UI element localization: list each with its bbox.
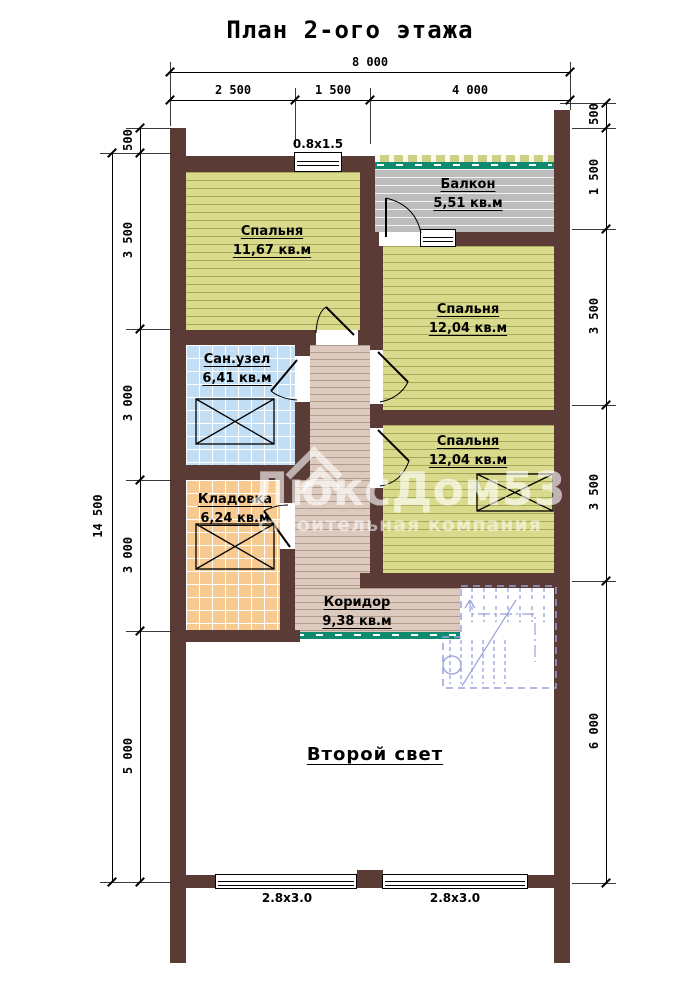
stairs-treads [450,588,544,684]
door-gap-balcony [379,232,421,246]
extension-line [572,229,616,230]
wall-left [170,128,186,963]
room-label-storage: Кладовка 6,24 кв.м [175,490,295,528]
window-label-bottom-right: 2.8х3.0 [405,891,505,905]
window-pane [297,161,339,166]
dim-left-seg-2: 3 500 [121,190,135,290]
door-gap-bathroom [295,356,310,402]
extension-line [126,631,172,632]
room-corridor-mid [295,480,370,588]
room-name: Спальня [408,432,528,451]
stairs-newel [443,656,461,674]
window-pane [385,881,525,886]
room-corridor-upper [310,345,370,480]
wall-bedroom3-bottom [360,573,570,588]
dim-left-seg-3: 3 000 [121,353,135,453]
wall-bathroom-bottom [170,465,310,480]
room-area: 11,67 кв.м [212,241,332,260]
window-label-bottom-left: 2.8х3.0 [237,891,337,905]
door-gap-bedroom-2 [370,350,383,404]
window-balcony-bedroom2 [420,229,456,247]
room-name: Кладовка [175,490,295,509]
room-label-bathroom: Сан.узел 6,41 кв.м [177,350,297,388]
extension-line [126,329,172,330]
room-label-corridor: Коридор 9,38 кв.м [297,593,417,631]
room-area: 6,41 кв.м [177,369,297,388]
extension-line [126,480,172,481]
floor-plan-canvas: План 2-ого этажа [0,0,700,1000]
room-label-bedroom-3: Спальня 12,04 кв.м [408,432,528,470]
dim-right-seg-5: 6 000 [587,681,601,781]
dim-left-seg-4: 3 000 [121,505,135,605]
dimension-line [606,103,607,883]
dim-right-seg-2: 1 500 [587,127,601,227]
room-area: 5,51 кв.м [408,194,528,213]
dimension-line [170,72,570,73]
room-area: 6,24 кв.м [175,509,295,528]
extension-line [572,405,616,406]
stairs-walk-line [470,600,535,662]
dim-right-seg-4: 3 500 [587,442,601,542]
dim-right-seg-3: 3 500 [587,266,601,366]
door-gap-bedroom-1 [316,330,358,345]
room-name: Сан.узел [177,350,297,369]
wall-bathroom-right [295,330,310,480]
window-pane [218,881,354,886]
stairs-cut-line [462,600,516,686]
room-area: 9,38 кв.м [297,612,417,631]
window-bottom-right [382,874,528,889]
dim-left-seg-5: 5 000 [121,706,135,806]
extension-line [572,581,616,582]
wall-bottom-center-post [357,870,383,888]
wall-top [186,156,375,172]
window-pane [423,237,453,242]
dimension-line [112,153,113,882]
extension-line [572,883,616,884]
room-label-bedroom-1: Спальня 11,67 кв.м [212,222,332,260]
dim-total-width: 8 000 [320,55,420,69]
balcony-eave-hatch [375,155,554,162]
room-name: Спальня [408,300,528,319]
dim-top-seg-3: 4 000 [420,83,520,97]
window-label-top: 0.8х1.5 [288,137,348,151]
room-area: 12,04 кв.м [408,319,528,338]
room-area: 12,04 кв.м [408,451,528,470]
plan-title: План 2-ого этажа [0,16,700,44]
room-name: Балкон [408,175,528,194]
dimension-line [140,128,141,882]
window-top [294,152,342,172]
wall-storage-bottom [170,630,300,642]
corridor-railing [295,632,460,639]
dim-total-height: 14 500 [91,466,105,566]
window-bottom-left [215,874,357,889]
room-name: Коридор [297,593,417,612]
dim-top-seg-1: 2 500 [183,83,283,97]
balcony-railing [375,162,554,169]
room-label-bedroom-2: Спальня 12,04 кв.м [408,300,528,338]
door-gap-bedroom-3 [370,428,383,488]
dim-left-seg-1: 500 [121,90,135,190]
room-name: Спальня [212,222,332,241]
stairs-walk-arrow [465,600,475,608]
wall-bedroom2-bedroom3 [370,410,570,425]
second-light-label: Второй свет [295,744,455,765]
room-label-balcony: Балкон 5,51 кв.м [408,175,528,213]
dim-top-seg-2: 1 500 [283,83,383,97]
